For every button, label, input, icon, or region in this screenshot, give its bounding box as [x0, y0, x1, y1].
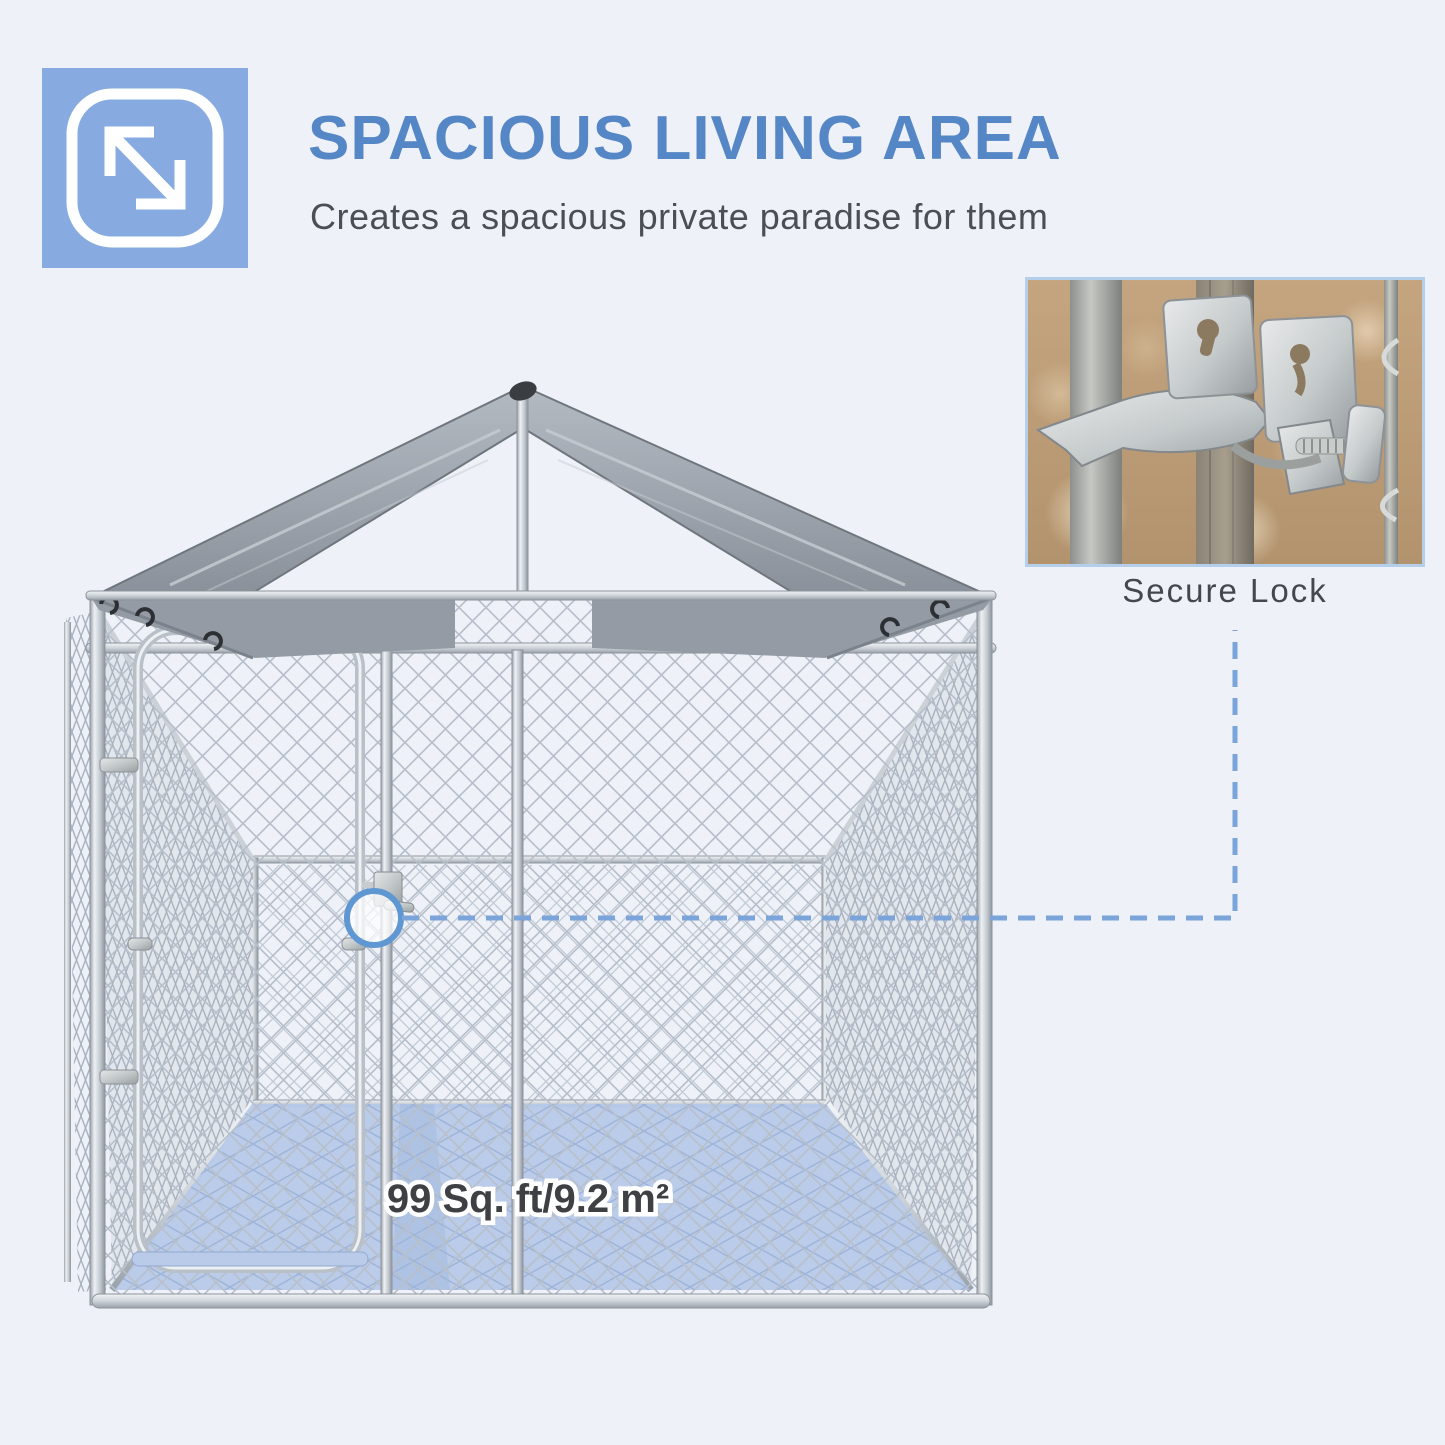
lock-photo-detail — [1028, 280, 1422, 564]
gable-rail — [86, 591, 996, 600]
floor-area-label: 99 Sq. ft/9.2 m² — [387, 1177, 669, 1221]
door-bottom-rail — [132, 1252, 368, 1266]
roof-support-pole — [517, 394, 528, 596]
secure-lock-photo — [1025, 277, 1425, 567]
latch-highlight-circle — [347, 891, 401, 945]
lock-caption: Secure Lock — [1025, 572, 1425, 610]
door-hinge-bottom — [100, 1070, 138, 1084]
kennel-illustration: 99 Sq. ft/9.2 m² — [0, 0, 1445, 1445]
door-hinge-top — [100, 758, 138, 772]
